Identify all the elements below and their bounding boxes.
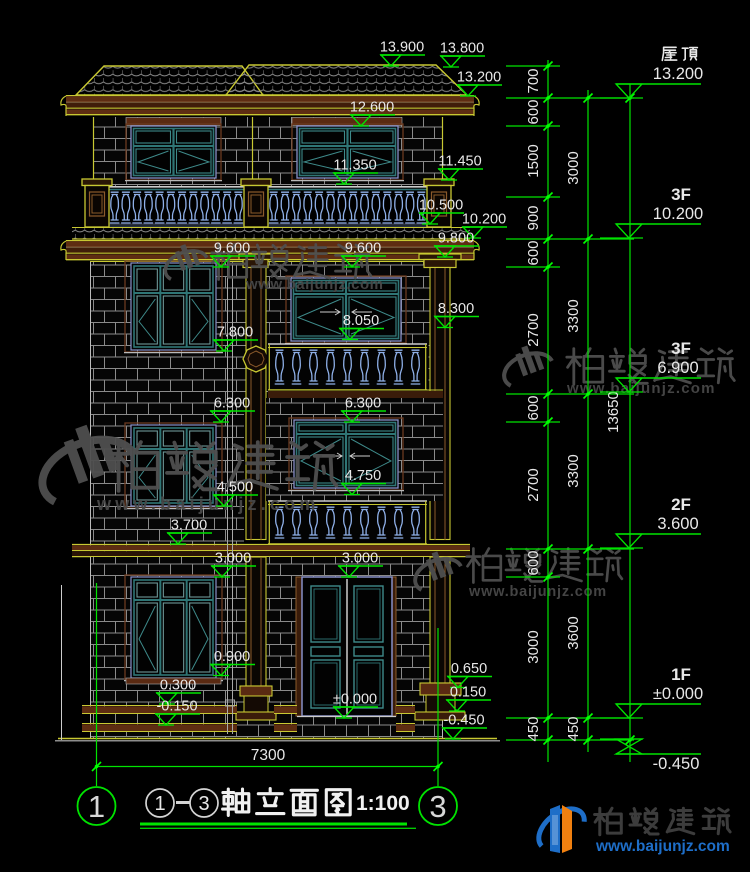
- svg-text:2F: 2F: [671, 495, 691, 514]
- svg-text:0.150: 0.150: [450, 685, 486, 701]
- svg-text:450: 450: [525, 716, 542, 741]
- svg-text:3.700: 3.700: [171, 518, 207, 534]
- svg-text:6.300: 6.300: [345, 396, 381, 412]
- svg-text:7.800: 7.800: [217, 325, 253, 341]
- svg-text:3.600: 3.600: [657, 515, 698, 533]
- svg-text:13.200: 13.200: [653, 65, 703, 83]
- svg-text:3F: 3F: [671, 339, 691, 358]
- svg-text:3: 3: [429, 789, 446, 824]
- svg-text:6.300: 6.300: [214, 396, 250, 412]
- svg-text:8.050: 8.050: [343, 313, 379, 329]
- svg-text:6.900: 6.900: [657, 359, 698, 377]
- svg-text:-0.450: -0.450: [443, 713, 484, 729]
- svg-text:1: 1: [154, 793, 165, 815]
- svg-text:3600: 3600: [565, 616, 582, 649]
- svg-text:www.baijunjz.com: www.baijunjz.com: [245, 276, 383, 293]
- svg-text:1:100: 1:100: [356, 792, 410, 815]
- svg-text:10.200: 10.200: [462, 212, 506, 228]
- svg-text:3: 3: [198, 793, 209, 815]
- svg-text:3300: 3300: [565, 299, 582, 332]
- svg-text:0.900: 0.900: [214, 649, 250, 665]
- svg-text:2700: 2700: [525, 313, 542, 346]
- svg-text:13.800: 13.800: [440, 41, 484, 57]
- svg-text:700: 700: [525, 68, 542, 93]
- svg-text:13.900: 13.900: [380, 40, 424, 56]
- svg-text:3.000: 3.000: [215, 551, 251, 567]
- svg-text:4.500: 4.500: [217, 480, 253, 496]
- svg-text:1: 1: [88, 789, 105, 824]
- svg-text:4.750: 4.750: [345, 468, 381, 484]
- svg-text:3.000: 3.000: [342, 551, 378, 567]
- svg-text:9.800: 9.800: [438, 231, 474, 247]
- svg-text:12.600: 12.600: [350, 100, 394, 116]
- svg-text:7300: 7300: [251, 747, 286, 764]
- svg-text:900: 900: [525, 205, 542, 230]
- svg-text:0.300: 0.300: [160, 678, 196, 694]
- svg-text:10.500: 10.500: [419, 198, 463, 214]
- svg-text:1F: 1F: [671, 665, 691, 684]
- svg-text:-0.150: -0.150: [156, 699, 197, 715]
- svg-text:1500: 1500: [525, 144, 542, 177]
- svg-text:3000: 3000: [565, 151, 582, 184]
- svg-text:11.350: 11.350: [333, 158, 376, 174]
- svg-text:13650: 13650: [605, 391, 622, 433]
- svg-text:9.600: 9.600: [214, 241, 250, 257]
- svg-text:2700: 2700: [525, 468, 542, 501]
- svg-text:0.650: 0.650: [451, 661, 487, 677]
- svg-text:600: 600: [525, 395, 542, 420]
- svg-text:-0.450: -0.450: [653, 755, 700, 773]
- svg-text:±0.000: ±0.000: [653, 685, 703, 703]
- svg-text:9.600: 9.600: [345, 241, 381, 257]
- svg-text:www.baijunjz.com: www.baijunjz.com: [595, 838, 730, 855]
- svg-text:13.200: 13.200: [457, 70, 501, 86]
- svg-text:10.200: 10.200: [653, 205, 703, 223]
- svg-text:600: 600: [525, 550, 542, 575]
- svg-text:±0.000: ±0.000: [333, 692, 377, 708]
- svg-text:8.300: 8.300: [438, 301, 474, 317]
- svg-text:3000: 3000: [525, 630, 542, 663]
- svg-text:450: 450: [565, 716, 582, 741]
- svg-text:3300: 3300: [565, 454, 582, 487]
- svg-text:3F: 3F: [671, 185, 691, 204]
- svg-text:www.baijunjz.com: www.baijunjz.com: [468, 584, 607, 600]
- svg-text:600: 600: [525, 99, 542, 124]
- svg-text:11.450: 11.450: [438, 154, 481, 170]
- svg-text:600: 600: [525, 240, 542, 265]
- svg-text:www.baijunjz.com: www.baijunjz.com: [96, 494, 320, 514]
